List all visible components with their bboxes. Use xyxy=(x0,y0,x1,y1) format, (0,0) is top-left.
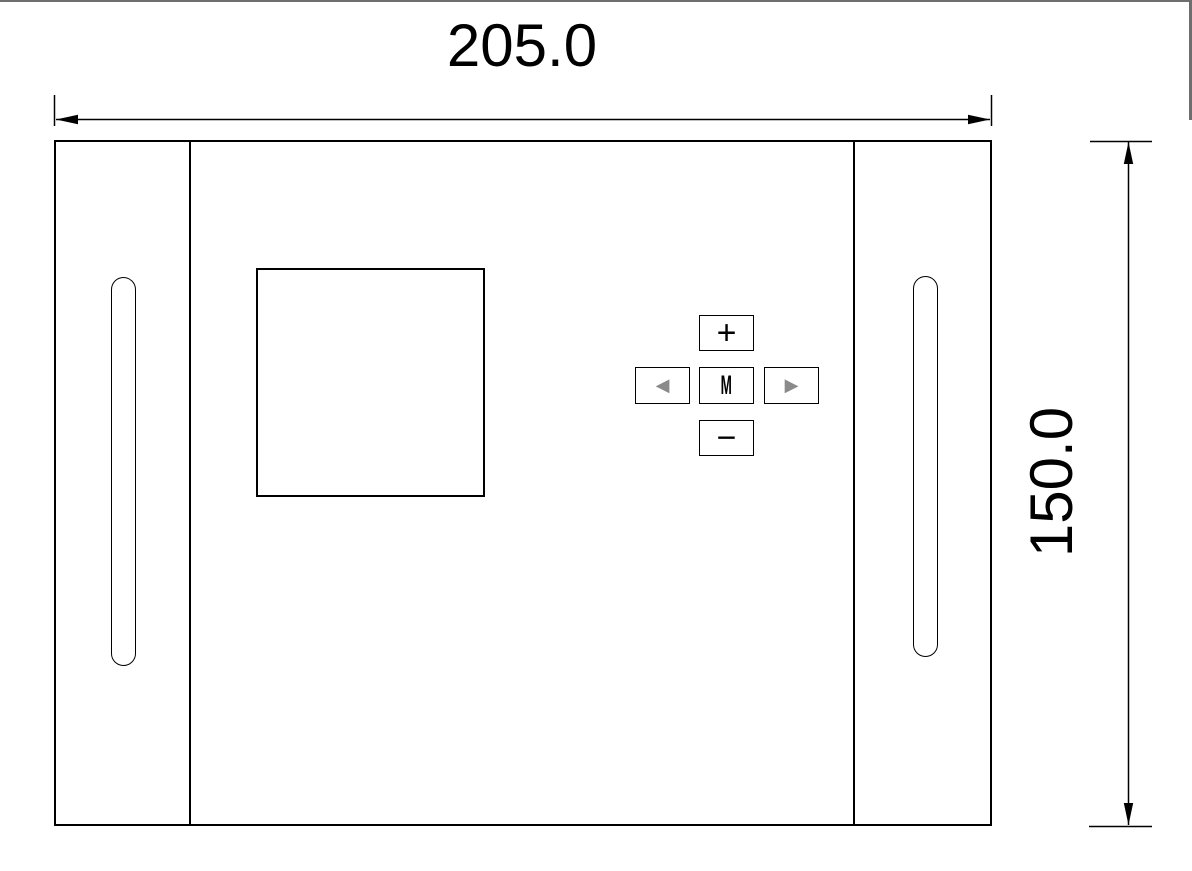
display-screen xyxy=(256,268,485,497)
right-arrow-button[interactable]: ▶ xyxy=(764,367,819,404)
width-dimension-label: 205.0 xyxy=(447,16,597,76)
minus-icon: − xyxy=(717,419,737,458)
height-dimension-label: 150.0 xyxy=(1022,407,1082,557)
left-arrow-button[interactable]: ◀ xyxy=(635,367,690,404)
device-panel-outline xyxy=(54,140,992,826)
plus-button[interactable]: + xyxy=(699,315,754,351)
vent-slot-right xyxy=(913,276,938,657)
height-arrowhead-top xyxy=(1124,142,1133,164)
right-arrow-icon: ▶ xyxy=(785,375,799,396)
plus-icon: + xyxy=(717,314,737,353)
width-arrowhead-left xyxy=(56,115,78,124)
width-arrowhead-right xyxy=(968,115,990,124)
minus-button[interactable]: − xyxy=(699,420,754,456)
panel-divider-line-left xyxy=(189,140,191,826)
menu-button[interactable]: M xyxy=(699,367,754,404)
panel-divider-line-right xyxy=(853,140,855,826)
left-arrow-icon: ◀ xyxy=(656,375,670,396)
window-frame-top-edge xyxy=(0,0,1192,2)
height-arrowhead-bottom xyxy=(1124,803,1133,825)
vent-slot-left xyxy=(111,277,136,666)
drawing-canvas: 205.0 150.0 + ◀ M ▶ − xyxy=(0,0,1192,871)
menu-button-label: M xyxy=(721,370,732,401)
